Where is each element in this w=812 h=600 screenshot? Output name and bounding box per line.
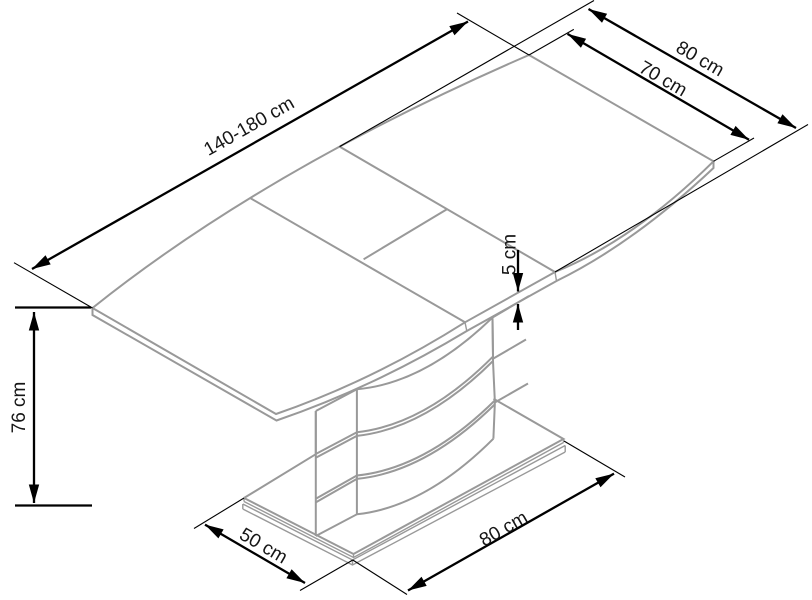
svg-text:5 cm: 5 cm — [500, 234, 521, 275]
svg-text:76 cm: 76 cm — [9, 382, 30, 434]
